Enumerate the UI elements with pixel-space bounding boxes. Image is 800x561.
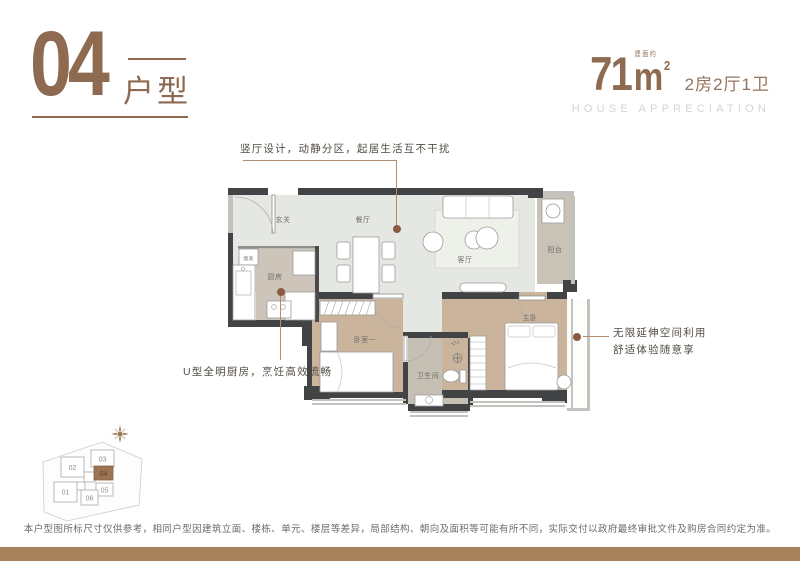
- leader-kitchen-dot: [277, 288, 285, 296]
- annotation-master-line1: 无限延伸空间利用: [613, 325, 707, 342]
- site-label-05: 05: [101, 488, 109, 495]
- site-label-03: 03: [99, 457, 107, 464]
- area-header: 71 建面约 m 2 2房2厅1卫 HOUSE APPRECIATION: [572, 50, 770, 115]
- annotation-master-line2: 舒适体验随意享: [613, 342, 707, 359]
- room-label-kitchen: 厨房: [268, 272, 283, 281]
- disclaimer-text: 本户型图所标尺寸仅供参考，相同户型因建筑立面、楼栋、单元、楼层等差异，局部结构、…: [0, 521, 800, 535]
- room-label-flue: 烟道: [244, 255, 254, 262]
- site-label-04: 04: [100, 471, 108, 478]
- room-label-dining: 餐厅: [356, 215, 371, 224]
- leader-living-dot: [393, 225, 401, 233]
- leader-living-h: [243, 160, 397, 161]
- site-core: [84, 472, 95, 482]
- room-label-entry: 玄关: [276, 215, 291, 224]
- annotation-living: 竖厅设计，动静分区，起居生活互不干扰: [240, 141, 451, 156]
- leader-master-dot: [573, 333, 581, 341]
- room-label-bedroom1: 卧室一: [354, 335, 377, 344]
- area-value: 71: [591, 50, 632, 97]
- compass-icon: [111, 425, 129, 443]
- unit-number: 04: [30, 18, 106, 110]
- area-prefix-label: 建面约: [635, 49, 658, 59]
- site-keyplan: 01 02 03 04 05 06: [38, 424, 150, 526]
- unit-type-label: 户型: [123, 66, 191, 111]
- site-label-01: 01: [62, 490, 70, 497]
- footer-band: [0, 547, 800, 561]
- room-label-balcony: 阳台: [548, 245, 563, 254]
- room-label-living: 客厅: [458, 255, 473, 264]
- washing-machine: [542, 199, 564, 223]
- site-label-02: 02: [69, 465, 77, 472]
- subtitle-english: HOUSE APPRECIATION: [572, 103, 770, 115]
- leader-master-h: [583, 336, 609, 337]
- area-superscript: 2: [664, 58, 670, 73]
- hall-floor: [403, 292, 442, 338]
- room-label-master: 主卧: [523, 313, 538, 322]
- header-accent-line-bottom: [32, 116, 188, 118]
- header-accent-line-top: [128, 58, 186, 60]
- annotation-kitchen: U型全明厨房，烹饪高效流畅: [183, 364, 332, 379]
- area-unit: m: [634, 56, 663, 99]
- layout-spec: 2房2厅1卫: [685, 70, 770, 95]
- leader-living-v: [396, 160, 397, 225]
- leader-kitchen-v: [280, 296, 281, 360]
- site-label-06: 06: [86, 496, 94, 503]
- master-baywindow-floor: [567, 299, 588, 408]
- room-label-bathroom: 卫生间: [417, 371, 440, 380]
